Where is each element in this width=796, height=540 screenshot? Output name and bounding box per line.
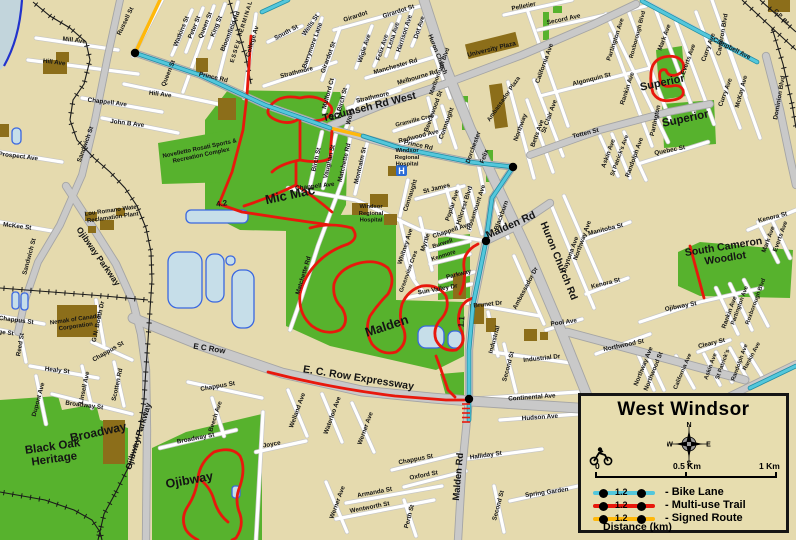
multi-use-trail-distance: 1.2: [615, 500, 628, 510]
junction-dot: [131, 49, 139, 57]
multi-use-trail-label: - Multi-use Trail: [665, 499, 746, 511]
svg-text:1.1: 1.1: [457, 315, 467, 327]
compass-north-label: N: [686, 422, 691, 429]
pond: [12, 128, 21, 144]
cyclist-icon: [589, 446, 613, 466]
pond: [12, 292, 19, 309]
pond: [232, 270, 254, 328]
building: [218, 98, 236, 120]
scale-bar: [595, 472, 777, 478]
bike-lane-label: - Bike Lane: [665, 486, 724, 498]
scale-half: 0.5 Km: [673, 461, 701, 471]
building: [88, 226, 96, 233]
building: [384, 214, 397, 225]
bike-lane-distance: 1.2: [615, 487, 628, 497]
building: [0, 124, 9, 137]
building: [524, 329, 537, 341]
pond: [226, 256, 235, 265]
pond: [168, 252, 202, 308]
pond: [21, 293, 28, 310]
legend-title: West Windsor: [581, 399, 786, 421]
map-label: WindsorRegionalHospital: [395, 148, 420, 168]
svg-text:4.2: 4.2: [216, 198, 229, 209]
scale-one: 1 Km: [759, 461, 780, 471]
map-label: 1.1: [457, 315, 467, 327]
junction-dot: [509, 163, 517, 171]
signed-route-label: - Signed Route: [665, 512, 743, 524]
scale-zero: 0: [595, 461, 600, 471]
legend-item-bike-lane: 1.2 - Bike Lane: [591, 486, 786, 500]
map-label: 4.2: [216, 198, 229, 209]
park-area: [553, 6, 562, 13]
distance-units-label: Distance (km): [603, 521, 672, 533]
junction-dot: [465, 395, 473, 403]
building: [196, 58, 208, 72]
pond: [206, 254, 224, 302]
compass-east-label: E: [706, 442, 711, 449]
map-screenshot: HRussell StWatkins StPeter StQueen StKin…: [0, 0, 796, 540]
legend-panel: West Windsor N S W E 0 0.5 Km 1 Km: [578, 393, 789, 533]
svg-text:WindsorRegionalHospital: WindsorRegionalHospital: [359, 204, 384, 224]
legend-item-multi-use-trail: 1.2 - Multi-use Trail: [591, 499, 786, 513]
map-label: WindsorRegionalHospital: [359, 204, 384, 224]
svg-text:WindsorRegionalHospital: WindsorRegionalHospital: [395, 148, 420, 168]
building: [540, 332, 548, 340]
compass-west-label: W: [667, 442, 673, 449]
compass-rose-icon: N S W E: [667, 422, 711, 466]
